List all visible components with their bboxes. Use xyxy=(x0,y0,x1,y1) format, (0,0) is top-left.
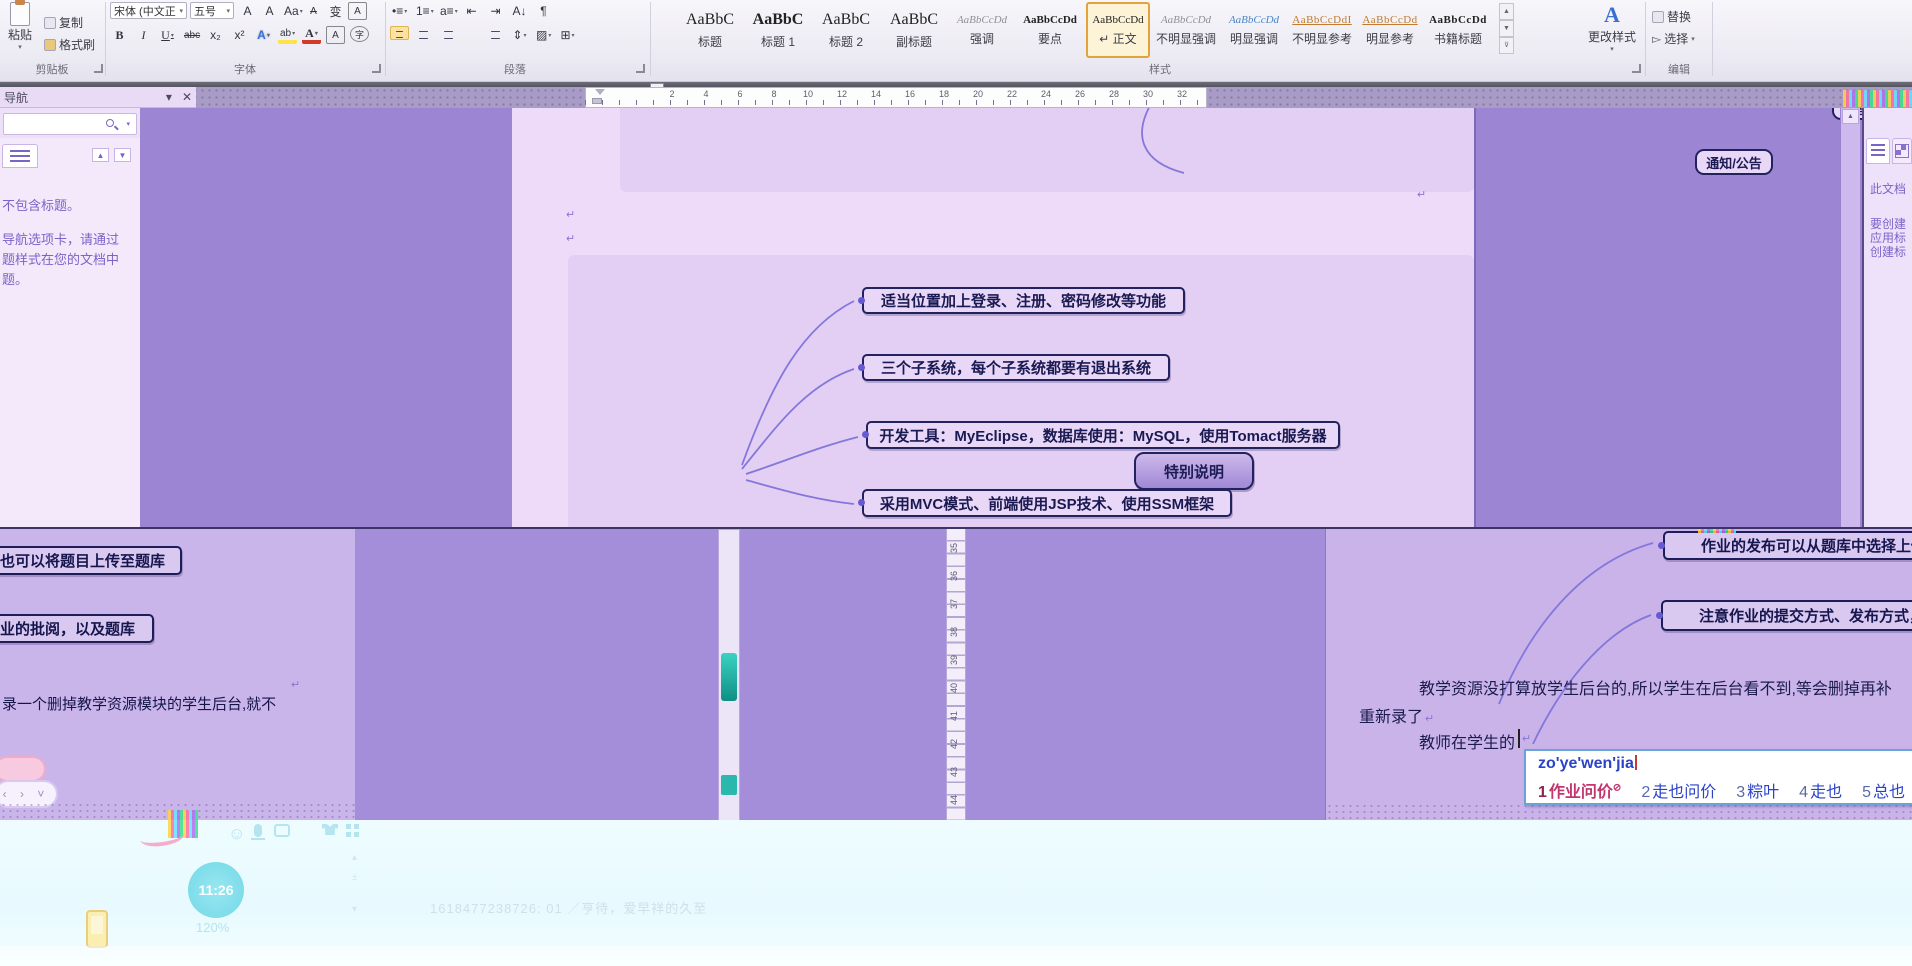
mindmap-node[interactable]: 注意作业的提交方式、发布方式，作 xyxy=(1661,600,1912,631)
scrollbar-block[interactable] xyxy=(721,775,737,795)
style-label: 要点 xyxy=(1038,30,1062,47)
pilcrow-mark: ↵ xyxy=(291,678,300,691)
node-label: 三个子系统，每个子系统都要有退出系统 xyxy=(881,357,1151,378)
mini-pages-tab[interactable] xyxy=(1892,138,1912,164)
clipboard-group-label: 剪贴板 xyxy=(7,61,97,77)
style-chip-1[interactable]: AaBbC标题 xyxy=(678,2,742,58)
document-area-top: ▾ ▲ ▼ 不包含标题。导航选项卡，请通过题样式在您的文档中题。 管理员 通知/… xyxy=(0,108,1912,527)
search-dropdown-icon[interactable]: ▾ xyxy=(126,120,130,128)
ribbon: 粘贴 ▾ 复制 格式刷 剪贴板 宋体 (中文正▾ 五号▾ AAAaA变A BIU… xyxy=(0,0,1912,82)
align-left-button[interactable] xyxy=(390,26,409,40)
paste-label: 粘贴 xyxy=(8,26,32,43)
style-chip-10[interactable]: AaBbCcDdI不明显参考 xyxy=(1290,2,1354,58)
ruler-number: 32 xyxy=(1177,89,1187,99)
decrease-indent-icon[interactable]: ⇤ xyxy=(462,2,481,20)
copy-label: 复制 xyxy=(59,14,83,31)
navigation-pane-header: 导航 ▾ ✕ xyxy=(0,87,196,108)
left-indent-marker[interactable] xyxy=(592,98,602,104)
increase-indent-icon[interactable]: ⇥ xyxy=(486,2,505,20)
ruler-number: 14 xyxy=(871,89,881,99)
window-icon[interactable] xyxy=(274,824,290,837)
ruler-number: 24 xyxy=(1041,89,1051,99)
multilevel-list-icon[interactable]: a≡ xyxy=(438,2,460,20)
body-text-line: 教师在学生的 xyxy=(1419,729,1515,753)
clipboard-dialog-launcher[interactable] xyxy=(94,64,103,73)
ruler-ticks xyxy=(585,100,1207,105)
pinyin-text: zo'ye'wen'jia xyxy=(1538,755,1634,772)
clock-bubble: 11:26 xyxy=(188,862,244,918)
enclose-character-button[interactable]: 字 xyxy=(350,26,369,42)
font-name-combo[interactable]: 宋体 (中文正▾ xyxy=(110,2,187,19)
ime-candidate-window[interactable]: zo'ye'wen'jia 1作业问价⊘2走也问价3粽叶4走也5总也 xyxy=(1524,749,1912,805)
body-text-line: 重新录了↵ xyxy=(1359,703,1434,727)
strikethrough-button[interactable]: abc xyxy=(182,26,202,44)
document-area-bottom: 也可以将题目上传至题库 业的批阅，以及题库 ↵ 录一个删掉教学资源模块的学生后台… xyxy=(0,527,1912,820)
ruler-number: 4 xyxy=(703,89,708,99)
ruler-number: 37 xyxy=(949,599,959,609)
paragraph-dialog-launcher[interactable] xyxy=(636,64,645,73)
style-preview: AaBbCcDd xyxy=(1092,14,1143,26)
styles-group-label: 样式 xyxy=(1115,61,1205,77)
bullets-icon[interactable]: •≡ xyxy=(390,2,409,20)
style-preview: AaBbCcDd xyxy=(1023,14,1077,26)
node-label: 开发工具：MyEclipse，数据库使用：MySQL，使用Tomact服务器 xyxy=(879,425,1326,446)
nav-prev-button[interactable]: ▲ xyxy=(92,148,109,162)
ruler-number: 18 xyxy=(939,89,949,99)
ruler-number: 28 xyxy=(1109,89,1119,99)
document-page[interactable]: 管理员 通知/公告 特别说明 适当位置加上登录、注册、密码修改等功能三个子系统，… xyxy=(512,108,1474,527)
style-label: 明显参考 xyxy=(1366,30,1414,47)
style-preview: AaBbCcDd xyxy=(957,14,1007,26)
bottom-right-page[interactable]: 作业的发布可以从题库中选择上传， 注意作业的提交方式、发布方式，作 教学资源没打… xyxy=(1325,529,1912,820)
style-label: 不明显强调 xyxy=(1156,30,1216,47)
mic-icon[interactable] xyxy=(254,824,262,837)
mindmap-root-node[interactable]: 特别说明 xyxy=(1134,452,1254,490)
style-preview: AaBbCcDd xyxy=(1161,14,1211,26)
candidate-number: 5 xyxy=(1862,784,1871,801)
style-preview: AaBbC xyxy=(890,11,938,29)
subscript-button[interactable]: x₂ xyxy=(206,26,225,44)
text-effects-button[interactable]: A xyxy=(254,26,273,44)
change-case-icon[interactable]: Aa xyxy=(282,2,305,20)
style-preview: AaBbC xyxy=(753,11,804,29)
candidate-text: 粽叶 xyxy=(1747,784,1779,801)
change-styles-dropdown-icon[interactable]: ▾ xyxy=(1610,45,1614,53)
mindmap-node[interactable]: 业的批阅，以及题库 xyxy=(0,614,154,643)
grid-icon[interactable] xyxy=(346,824,351,829)
first-line-indent-marker[interactable] xyxy=(595,89,605,95)
mindmap-node[interactable]: 三个子系统，每个子系统都要有退出系统 xyxy=(862,354,1170,381)
pilcrow-mark: ↵ xyxy=(566,232,575,245)
ruler-number: 2 xyxy=(669,89,674,99)
styles-gallery: AaBbC标题AaBbC标题 1AaBbC标题 2AaBbC副标题AaBbCcD… xyxy=(672,0,1498,62)
bold-button[interactable]: B xyxy=(110,26,129,44)
ruler-number: 40 xyxy=(949,683,959,693)
nav-next-button[interactable]: ▼ xyxy=(114,148,131,162)
font-group-label: 字体 xyxy=(200,61,290,77)
font-size-combo[interactable]: 五号▾ xyxy=(190,2,234,19)
font-size-dropdown-icon[interactable]: ▾ xyxy=(226,7,230,15)
ruler-number: 6 xyxy=(737,89,742,99)
candidate-text: 走也问价 xyxy=(1652,784,1716,801)
font-name-dropdown-icon[interactable]: ▾ xyxy=(179,7,183,15)
vertical-scrollbar[interactable]: ▲ xyxy=(1840,108,1860,527)
mindmap-node[interactable]: 开发工具：MyEclipse，数据库使用：MySQL，使用Tomact服务器 xyxy=(866,421,1340,449)
body-text: 重新录了 xyxy=(1359,709,1423,726)
style-preview: AaBbC xyxy=(686,11,734,29)
ruler-number: 39 xyxy=(949,655,959,665)
vertical-ruler-middle[interactable]: 35363738394041424344 xyxy=(946,529,966,820)
borders-button[interactable]: ⊞ xyxy=(558,26,577,44)
char-shading-button[interactable]: A xyxy=(326,26,345,44)
style-chip-2[interactable]: AaBbC标题 1 xyxy=(746,2,810,58)
styles-scroll-up-icon[interactable]: ▲ xyxy=(1499,3,1514,20)
style-chip-6[interactable]: AaBbCcDd要点 xyxy=(1018,2,1082,58)
style-label: 标题 xyxy=(698,33,722,50)
ruler-number: 35 xyxy=(949,543,959,553)
style-label: 标题 2 xyxy=(829,33,863,50)
pilcrow-mark: ↵ xyxy=(566,208,575,221)
render-artifact xyxy=(1698,527,1736,533)
nav-headings-tab[interactable] xyxy=(2,144,38,168)
node-label: 作业的发布可以从题库中选择上传， xyxy=(1701,535,1912,556)
nav-message-line: 导航选项卡，请通过 xyxy=(2,229,119,248)
pilcrow-mark: ↵ xyxy=(1522,732,1531,745)
faint-scroll-up-icon: ▴ xyxy=(352,852,357,863)
headings-list-icon xyxy=(10,150,30,163)
bottom-left-scrollbar[interactable] xyxy=(718,529,740,820)
ime-pinyin: zo'ye'wen'jia xyxy=(1538,755,1637,773)
styles-scroll-down-icon[interactable]: ▼ xyxy=(1499,20,1514,37)
shading-button[interactable]: ▨ xyxy=(534,26,553,44)
ruler-number: 26 xyxy=(1075,89,1085,99)
pilcrow-mark: ↵ xyxy=(1425,713,1434,725)
replace-label: 替换 xyxy=(1667,8,1691,25)
candidate-text: 作业问价 xyxy=(1549,784,1613,801)
shrink-font-icon[interactable]: A xyxy=(260,2,279,20)
nav-message-line: 题。 xyxy=(2,269,28,288)
ruler-number: 12 xyxy=(837,89,847,99)
scrollbar-thumb[interactable] xyxy=(721,653,737,701)
style-label: ↵ 正文 xyxy=(1099,30,1136,47)
nav-options-dropdown-icon[interactable]: ▾ xyxy=(166,90,172,104)
style-chip-11[interactable]: AaBbCcDd明显参考 xyxy=(1358,2,1422,58)
body-text: 录一个删掉教学资源模块的学生后台,就不 xyxy=(2,693,276,714)
mindmap-node[interactable]: 采用MVC模式、前端使用JSP技术、使用SSM框架 xyxy=(862,489,1232,517)
italic-button[interactable]: I xyxy=(134,26,153,44)
style-label: 明显强调 xyxy=(1230,30,1278,47)
ime-candidate[interactable]: 3粽叶 xyxy=(1736,784,1779,801)
select-label: 选择 xyxy=(1664,30,1688,47)
navigation-pane: ▾ ▲ ▼ 不包含标题。导航选项卡，请通过题样式在您的文档中题。 xyxy=(0,108,140,527)
distribute-button[interactable] xyxy=(486,26,505,40)
style-chip-5[interactable]: AaBbCcDd强调 xyxy=(950,2,1014,58)
node-label: 特别说明 xyxy=(1164,461,1224,482)
node-label: 通知/公告 xyxy=(1706,153,1762,172)
highlight-button[interactable]: ab xyxy=(278,26,297,44)
render-artifact xyxy=(1843,90,1912,107)
headings-list-icon xyxy=(1871,144,1885,157)
swoosh-decoration xyxy=(139,825,185,849)
character-border-icon[interactable]: A xyxy=(348,2,367,20)
watermark-text: 1618477238726: 01 ／亨待，爱早祥的久至 xyxy=(430,898,707,917)
font-color-button[interactable]: A xyxy=(302,26,321,44)
bottom-left-page[interactable]: 也可以将题目上传至题库 业的批阅，以及题库 ↵ 录一个删掉教学资源模块的学生后台… xyxy=(0,529,355,820)
ruler-number: 41 xyxy=(949,711,959,721)
clipboard-icon xyxy=(10,2,30,26)
navigation-title: 导航 xyxy=(4,89,28,106)
paragraph-group-label: 段落 xyxy=(470,61,560,77)
style-chip-4[interactable]: AaBbC副标题 xyxy=(882,2,946,58)
candidate-number: 4 xyxy=(1799,784,1808,801)
second-window-nav-pane: 此文档要创建应用标创建标 xyxy=(1862,108,1912,527)
nav-close-icon[interactable]: ✕ xyxy=(182,90,192,104)
replace-button[interactable]: 替换 xyxy=(1652,8,1691,25)
style-preview: AaBbCcDd xyxy=(1362,14,1417,26)
taskbar-bottom-strip xyxy=(0,946,1912,966)
faint-scroll-down-icon: ▾ xyxy=(352,904,357,915)
format-painter-label: 格式刷 xyxy=(59,36,95,53)
ruler-number: 30 xyxy=(1143,89,1153,99)
style-chip-8[interactable]: AaBbCcDd不明显强调 xyxy=(1154,2,1218,58)
style-chip-12[interactable]: AaBbCcDd书籍标题 xyxy=(1426,2,1490,58)
paste-button[interactable]: 粘贴 ▾ xyxy=(8,2,32,51)
styles-more-icon[interactable]: ⊽ xyxy=(1499,37,1514,54)
align-center-button[interactable] xyxy=(414,26,433,40)
node-label: 注意作业的提交方式、发布方式，作 xyxy=(1699,605,1912,626)
underline-button[interactable]: U xyxy=(158,26,177,44)
font-size-value: 五号 xyxy=(194,3,216,19)
phone-icon[interactable] xyxy=(86,910,108,948)
ime-candidate[interactable]: 2走也问价 xyxy=(1641,784,1716,801)
mini-headings-tab[interactable] xyxy=(1866,138,1890,164)
mindmap-node[interactable]: 也可以将题目上传至题库 xyxy=(0,546,182,575)
text-cursor xyxy=(1518,729,1520,748)
node-label: 适当位置加上登录、注册、密码修改等功能 xyxy=(881,290,1166,311)
superscript-button[interactable]: x² xyxy=(230,26,249,44)
select-dropdown-icon[interactable]: ▾ xyxy=(1691,35,1695,43)
body-text: 教师在学生的 xyxy=(1419,735,1515,752)
copy-button[interactable]: 复制 xyxy=(44,14,83,31)
select-cursor-icon: ▻ xyxy=(1652,32,1661,46)
nav-message-line: 题样式在您的文档中 xyxy=(2,249,119,268)
horizontal-ruler[interactable]: 2468101214161820222426283032 xyxy=(143,87,1912,108)
replace-icon xyxy=(1652,11,1664,23)
faint-plusminus: ± xyxy=(352,872,358,883)
drawing-canvas-top[interactable] xyxy=(620,108,1474,192)
shirt-icon[interactable] xyxy=(322,824,338,835)
copy-icon xyxy=(44,17,56,29)
paste-dropdown-icon[interactable]: ▾ xyxy=(18,43,22,51)
node-label: 也可以将题目上传至题库 xyxy=(0,550,165,571)
format-painter-button[interactable]: 格式刷 xyxy=(44,36,95,53)
ime-candidate[interactable]: 1作业问价⊘ xyxy=(1538,784,1621,801)
candidate-text: 总也 xyxy=(1873,784,1905,801)
candidate-number: 3 xyxy=(1736,784,1745,801)
zoom-level: 120% xyxy=(196,920,229,935)
chevrons-label: ‹ › ˅ xyxy=(3,787,50,801)
grow-font-icon[interactable]: A xyxy=(238,2,257,20)
styles-scroll[interactable]: ▲ ▼ ⊽ xyxy=(1499,3,1514,54)
mindmap-node[interactable]: 适当位置加上登录、注册、密码修改等功能 xyxy=(862,287,1185,314)
ruler-number: 22 xyxy=(1007,89,1017,99)
ruler-number: 20 xyxy=(973,89,983,99)
sort-icon[interactable]: A↓ xyxy=(510,2,529,20)
change-styles-label: 更改样式 xyxy=(1588,28,1636,45)
line-spacing-button[interactable]: ⇕ xyxy=(510,26,529,44)
style-label: 书籍标题 xyxy=(1434,30,1482,47)
show-marks-icon[interactable]: ¶ xyxy=(534,2,553,20)
page-margin-dots xyxy=(1326,803,1912,819)
align-right-button[interactable] xyxy=(438,26,457,40)
ime-caret xyxy=(1635,755,1637,770)
change-styles-icon: A xyxy=(1604,2,1620,28)
style-preview: AaBbCcDd xyxy=(1229,14,1279,26)
body-text: 教学资源没打算放学生后台的,所以学生在后台看不到,等会删掉再补 xyxy=(1419,675,1892,699)
ruler-number: 43 xyxy=(949,767,959,777)
ime-candidate[interactable]: 4走也 xyxy=(1799,784,1842,801)
ime-candidate[interactable]: 5总也 xyxy=(1862,784,1905,801)
floating-toolbar[interactable] xyxy=(0,756,46,782)
candidate-number: 2 xyxy=(1641,784,1650,801)
ruler-number: 36 xyxy=(949,571,959,581)
style-preview: AaBbCcDd xyxy=(1429,14,1487,26)
change-styles-button[interactable]: A 更改样式 ▾ xyxy=(1582,2,1642,53)
taskbar-overlay: ☺ 11:26 120% ▴ ± ▾ 1618477238726: 01 ／亨待… xyxy=(0,820,1912,966)
node-label: 业的批阅，以及题库 xyxy=(0,618,135,639)
ruler-number: 8 xyxy=(771,89,776,99)
pilcrow-mark: ↵ xyxy=(1417,188,1426,201)
style-label: 标题 1 xyxy=(761,33,795,50)
style-chip-7[interactable]: AaBbCcDd↵ 正文 xyxy=(1086,2,1150,58)
numbering-icon[interactable]: 1≡ xyxy=(414,2,436,20)
candidate-badge-icon: ⊘ xyxy=(1613,783,1621,794)
select-button[interactable]: ▻选择▾ xyxy=(1652,30,1695,47)
font-name-value: 宋体 (中文正 xyxy=(114,3,176,19)
node-label: 采用MVC模式、前端使用JSP技术、使用SSM框架 xyxy=(880,493,1214,514)
justify-button[interactable] xyxy=(462,26,481,40)
clear-formatting-icon[interactable]: A xyxy=(304,2,323,20)
mindmap-node-notice[interactable]: 通知/公告 xyxy=(1695,149,1773,175)
nav-search-input[interactable]: ▾ xyxy=(3,113,137,135)
nav-message-line: 此文档 xyxy=(1870,180,1906,197)
candidate-number: 1 xyxy=(1538,784,1547,801)
mindmap-node[interactable]: 作业的发布可以从题库中选择上传， xyxy=(1663,531,1912,560)
style-preview: AaBbC xyxy=(822,11,870,29)
style-label: 副标题 xyxy=(896,33,932,50)
ruler-number: 10 xyxy=(803,89,813,99)
candidate-text: 走也 xyxy=(1810,784,1842,801)
nav-message-line: 不包含标题。 xyxy=(2,195,80,214)
phonetic-guide-icon[interactable]: 变 xyxy=(326,2,345,20)
pages-grid-icon xyxy=(1896,145,1908,157)
clock-time: 11:26 xyxy=(198,882,233,898)
editing-group-label: 编辑 xyxy=(1634,61,1724,77)
ruler-number: 16 xyxy=(905,89,915,99)
ruler-number: 44 xyxy=(949,795,959,805)
ruler-number: 42 xyxy=(949,739,959,749)
style-preview: AaBbCcDdI xyxy=(1292,14,1352,26)
style-chip-3[interactable]: AaBbC标题 2 xyxy=(814,2,878,58)
style-label: 不明显参考 xyxy=(1292,30,1352,47)
font-dialog-launcher[interactable] xyxy=(372,64,381,73)
style-chip-9[interactable]: AaBbCcDd明显强调 xyxy=(1222,2,1286,58)
smiley-icon[interactable]: ☺ xyxy=(228,824,245,844)
nav-results-panel: ▲ ▼ 不包含标题。导航选项卡，请通过题样式在您的文档中题。 xyxy=(0,138,140,527)
format-painter-icon xyxy=(44,39,56,51)
search-icon xyxy=(106,119,114,127)
scroll-up-icon[interactable]: ▲ xyxy=(1842,109,1859,124)
nav-message-line: 创建标 xyxy=(1870,243,1906,260)
ruler-number: 38 xyxy=(949,627,959,637)
style-label: 强调 xyxy=(970,30,994,47)
